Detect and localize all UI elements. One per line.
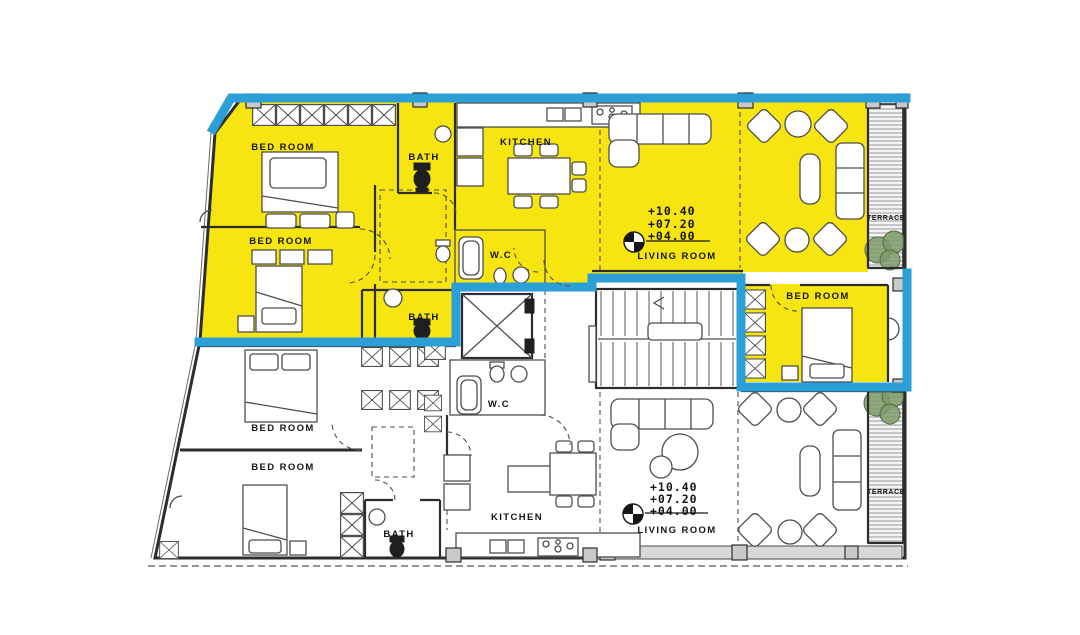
sofa (836, 143, 864, 219)
room-label-bedroom-1-upper: BED ROOM (251, 142, 314, 153)
sink-icon (435, 126, 451, 142)
fridge-icon (457, 128, 483, 156)
sink-icon (565, 108, 581, 121)
toilet-icon (436, 240, 450, 262)
terrace-upper (865, 104, 905, 270)
round-table (785, 228, 809, 252)
bench (800, 154, 820, 204)
balcony-door-arc (888, 318, 899, 340)
room-label-kitchen-upper: KITCHEN (500, 137, 552, 148)
toilet-icon (414, 163, 430, 192)
round-table (785, 111, 811, 137)
room-label-bedroom-2-upper: BED ROOM (249, 236, 312, 247)
room-label-bath-2-upper: BATH (408, 312, 439, 323)
room-label-wc-upper: W.C (490, 250, 512, 261)
floor-plan: BED ROOM BATH KITCHEN BED ROOM W.C BATH … (0, 0, 1080, 635)
room-label-living-upper: LIVING ROOM (637, 251, 716, 262)
level-value: +10.40 (648, 204, 696, 218)
bidet-icon (494, 268, 506, 284)
floor-plan-canvas: BED ROOM BATH KITCHEN BED ROOM W.C BATH … (0, 0, 1080, 635)
sink-icon (547, 108, 563, 121)
room-label-bath-1-upper: BATH (408, 152, 439, 163)
sink-icon (384, 289, 402, 307)
room-label-terrace-upper: TERRACE (867, 215, 905, 222)
staircase (589, 289, 738, 388)
level-value: +04.00 (648, 229, 696, 243)
bathtub-icon (459, 237, 483, 279)
room-label-bedroom-3-upper: BED ROOM (786, 291, 849, 302)
stair-rail (648, 323, 702, 340)
